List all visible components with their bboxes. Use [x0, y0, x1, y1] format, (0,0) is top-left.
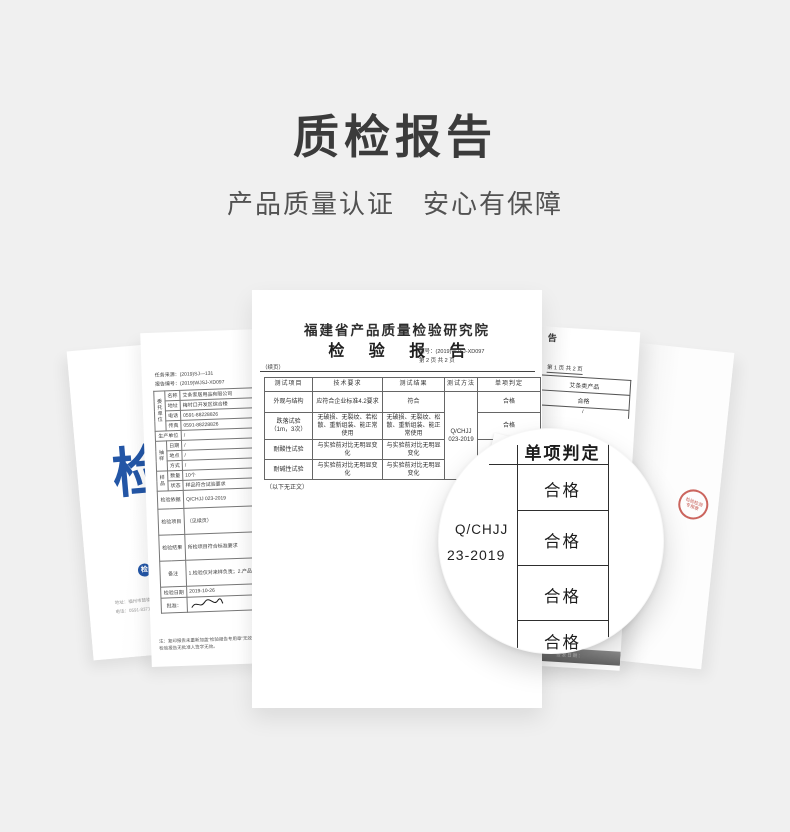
report-page-info: 第 2 页 共 2 页 [419, 358, 455, 364]
continued-label: （续页） [262, 363, 284, 371]
result-label: 检验结果 [159, 534, 186, 561]
test-result: 与实验前对比无明显变化 [383, 440, 445, 460]
section-subtitle: 产品质量认证安心有保障 [0, 184, 790, 221]
magnified-table-line [517, 565, 609, 566]
approver-signature-icon [190, 598, 224, 611]
col-header: 单项判定 [478, 378, 541, 392]
verdict: 合格 [478, 392, 541, 413]
tech-requirement: 无破损、无裂纹、若松散、重新组装、能正常使用 [313, 413, 383, 440]
col-header: 测试方法 [445, 378, 478, 392]
magnified-table-line [608, 443, 609, 653]
magnified-method-line1: Q/CHJJ [455, 522, 508, 537]
approve-label: 批准： [161, 597, 188, 613]
remark-label: 备注 [160, 560, 187, 587]
task-source-line: 任务来源：(2019)SJ—131 [155, 370, 214, 379]
magnifier-zoom-circle: 单项判定 合格 合格 合格 合格 Q/CHJJ 23-2019 [438, 428, 664, 654]
tech-requirement: 与实验前对比无明显变化 [313, 460, 383, 480]
institute-title: 福建省产品质量检验研究院 [252, 319, 542, 339]
report-no-line: 报告编号：(2019)WJSJ-XD097 [155, 378, 225, 387]
report-meta: 编号：(2019)WJSJ-XD097 第 2 页 共 2 页 [419, 348, 529, 367]
col-header: 测试项目 [265, 378, 313, 392]
tech-requirement: 与实验前对比无明显变化 [313, 440, 383, 460]
test-item: 外观与结构 [265, 392, 313, 413]
magnified-column-header: 单项判定 [517, 439, 608, 464]
right-page-info: 第 1 页 共 2 页 [547, 363, 583, 375]
test-result: 符合 [383, 392, 445, 413]
magnified-verdict-cell: 合格 [517, 477, 608, 501]
row-label: 状态 [168, 480, 183, 491]
section-title: 质检报告 [0, 101, 790, 167]
test-result: 与实验前对比无明显变化 [383, 460, 445, 480]
test-item: 耐碱性试验 [265, 460, 313, 480]
end-of-text-note: （以下无正文） [266, 482, 308, 491]
subtitle-right: 安心有保障 [423, 189, 563, 219]
table-row: 外观与结构 应符合企业标准4.2要求 符合 Q/CHJJ 023-2019 合格 [265, 392, 541, 413]
row-label: 数量 [168, 470, 183, 481]
test-item: 耐酸性试验 [265, 440, 313, 460]
row-label: 日期 [166, 440, 181, 451]
col-header: 测试结果 [383, 378, 445, 392]
magnified-verdict-cell: 合格 [517, 629, 608, 653]
subtitle-left: 产品质量认证 [227, 189, 395, 219]
item-label: 检验项目 [158, 508, 185, 535]
client-group-label: 委托单位 [156, 398, 164, 422]
magnified-method-line2: 23-2019 [447, 547, 505, 563]
basis-label: 检验依据 [157, 490, 184, 509]
row-label: 地点 [167, 450, 182, 461]
row-label: 地址 [165, 400, 180, 411]
col-header: 技术要求 [313, 378, 383, 392]
magnified-table-line [489, 464, 609, 465]
row-label: 电话 [165, 410, 180, 421]
red-stamp-icon: 检验检测专用章 [674, 485, 713, 524]
magnified-verdict-cell: 合格 [517, 528, 608, 552]
right-result-cells: 艾条类产品 合格 / [536, 374, 631, 419]
magnified-table-line [517, 620, 609, 621]
test-result: 无破损、无裂纹、松散、重新组装、能正常使用 [383, 413, 445, 440]
row-label: 名称 [165, 390, 180, 401]
tech-requirement: 应符合企业标准4.2要求 [313, 392, 383, 413]
quality-report-section: 质检报告 产品质量认证安心有保障 检 检 福建省产品质量检验研究院 地址：福州市… [0, 0, 790, 832]
magnified-table-line [517, 510, 609, 511]
test-item: 跌落试验 （1m，3次） [265, 413, 313, 440]
header-rule [260, 371, 535, 372]
row-label: 传真 [166, 420, 181, 431]
magnified-verdict-cell: 合格 [517, 583, 608, 607]
sampling-group-label: 抽样 [158, 449, 165, 461]
row-label: 方式 [167, 460, 182, 471]
right-header-fragment: 告 [547, 331, 557, 345]
report-number: 编号：(2019)WJSJ-XD097 [419, 349, 484, 355]
sample-group-label: 样品 [159, 474, 166, 486]
